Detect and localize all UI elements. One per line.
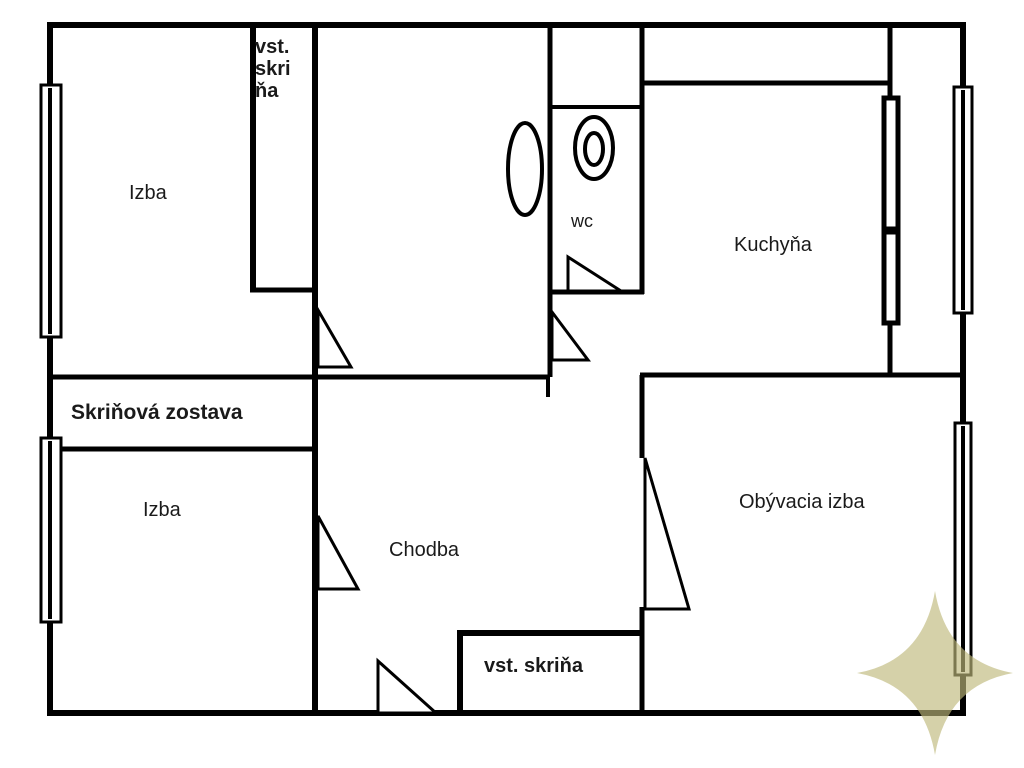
balcony-window-icon bbox=[884, 98, 898, 323]
room-label-obyvacia-izba: Obývacia izba bbox=[739, 491, 865, 513]
room-label-line: skri bbox=[255, 58, 291, 80]
room-label-line: vst. bbox=[255, 36, 291, 58]
room-label-izba-bottom: Izba bbox=[143, 499, 181, 521]
room-label-kuchyna: Kuchyňa bbox=[734, 234, 812, 256]
plan-background bbox=[0, 0, 1024, 768]
floor-plan-drawing bbox=[0, 0, 1024, 768]
room-label-chodba: Chodba bbox=[389, 539, 459, 561]
room-label-izba-top: Izba bbox=[129, 182, 167, 204]
room-label-wc: wc bbox=[571, 212, 593, 232]
floor-plan-page: { "plan": { "background_color": "#ffffff… bbox=[0, 0, 1024, 768]
window-icon bbox=[41, 85, 61, 337]
window-icon bbox=[954, 87, 972, 313]
window-icon bbox=[41, 438, 61, 622]
window-icon bbox=[955, 423, 971, 675]
room-label-line: ňa bbox=[255, 80, 291, 102]
room-label-vstavana-skrina-bottom: vst. skriňa bbox=[484, 655, 583, 677]
room-label-vstavana-skrina-top: vst. skri ňa bbox=[255, 36, 291, 102]
room-label-skrinova-zostava: Skriňová zostava bbox=[71, 401, 243, 424]
